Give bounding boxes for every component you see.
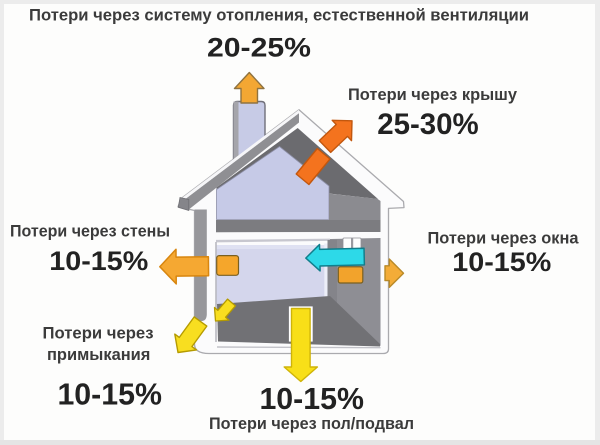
svg-text:Потери через крышу: Потери через крышу	[348, 85, 518, 104]
svg-text:10-15%: 10-15%	[49, 246, 148, 276]
svg-text:Потери через пол/подвал: Потери через пол/подвал	[209, 414, 414, 433]
svg-text:25-30%: 25-30%	[377, 108, 479, 141]
svg-text:Потери через систему отопления: Потери через систему отопления, естестве…	[29, 6, 529, 25]
svg-text:20-25%: 20-25%	[207, 32, 311, 62]
svg-text:примыкания: примыкания	[47, 345, 151, 364]
svg-text:10-15%: 10-15%	[57, 377, 162, 412]
svg-text:10-15%: 10-15%	[452, 247, 551, 277]
svg-text:Потери через: Потери через	[43, 324, 154, 343]
svg-text:Потери через окна: Потери через окна	[428, 229, 580, 248]
svg-text:Потери через стены: Потери через стены	[10, 221, 170, 240]
svg-text:10-15%: 10-15%	[259, 381, 364, 416]
